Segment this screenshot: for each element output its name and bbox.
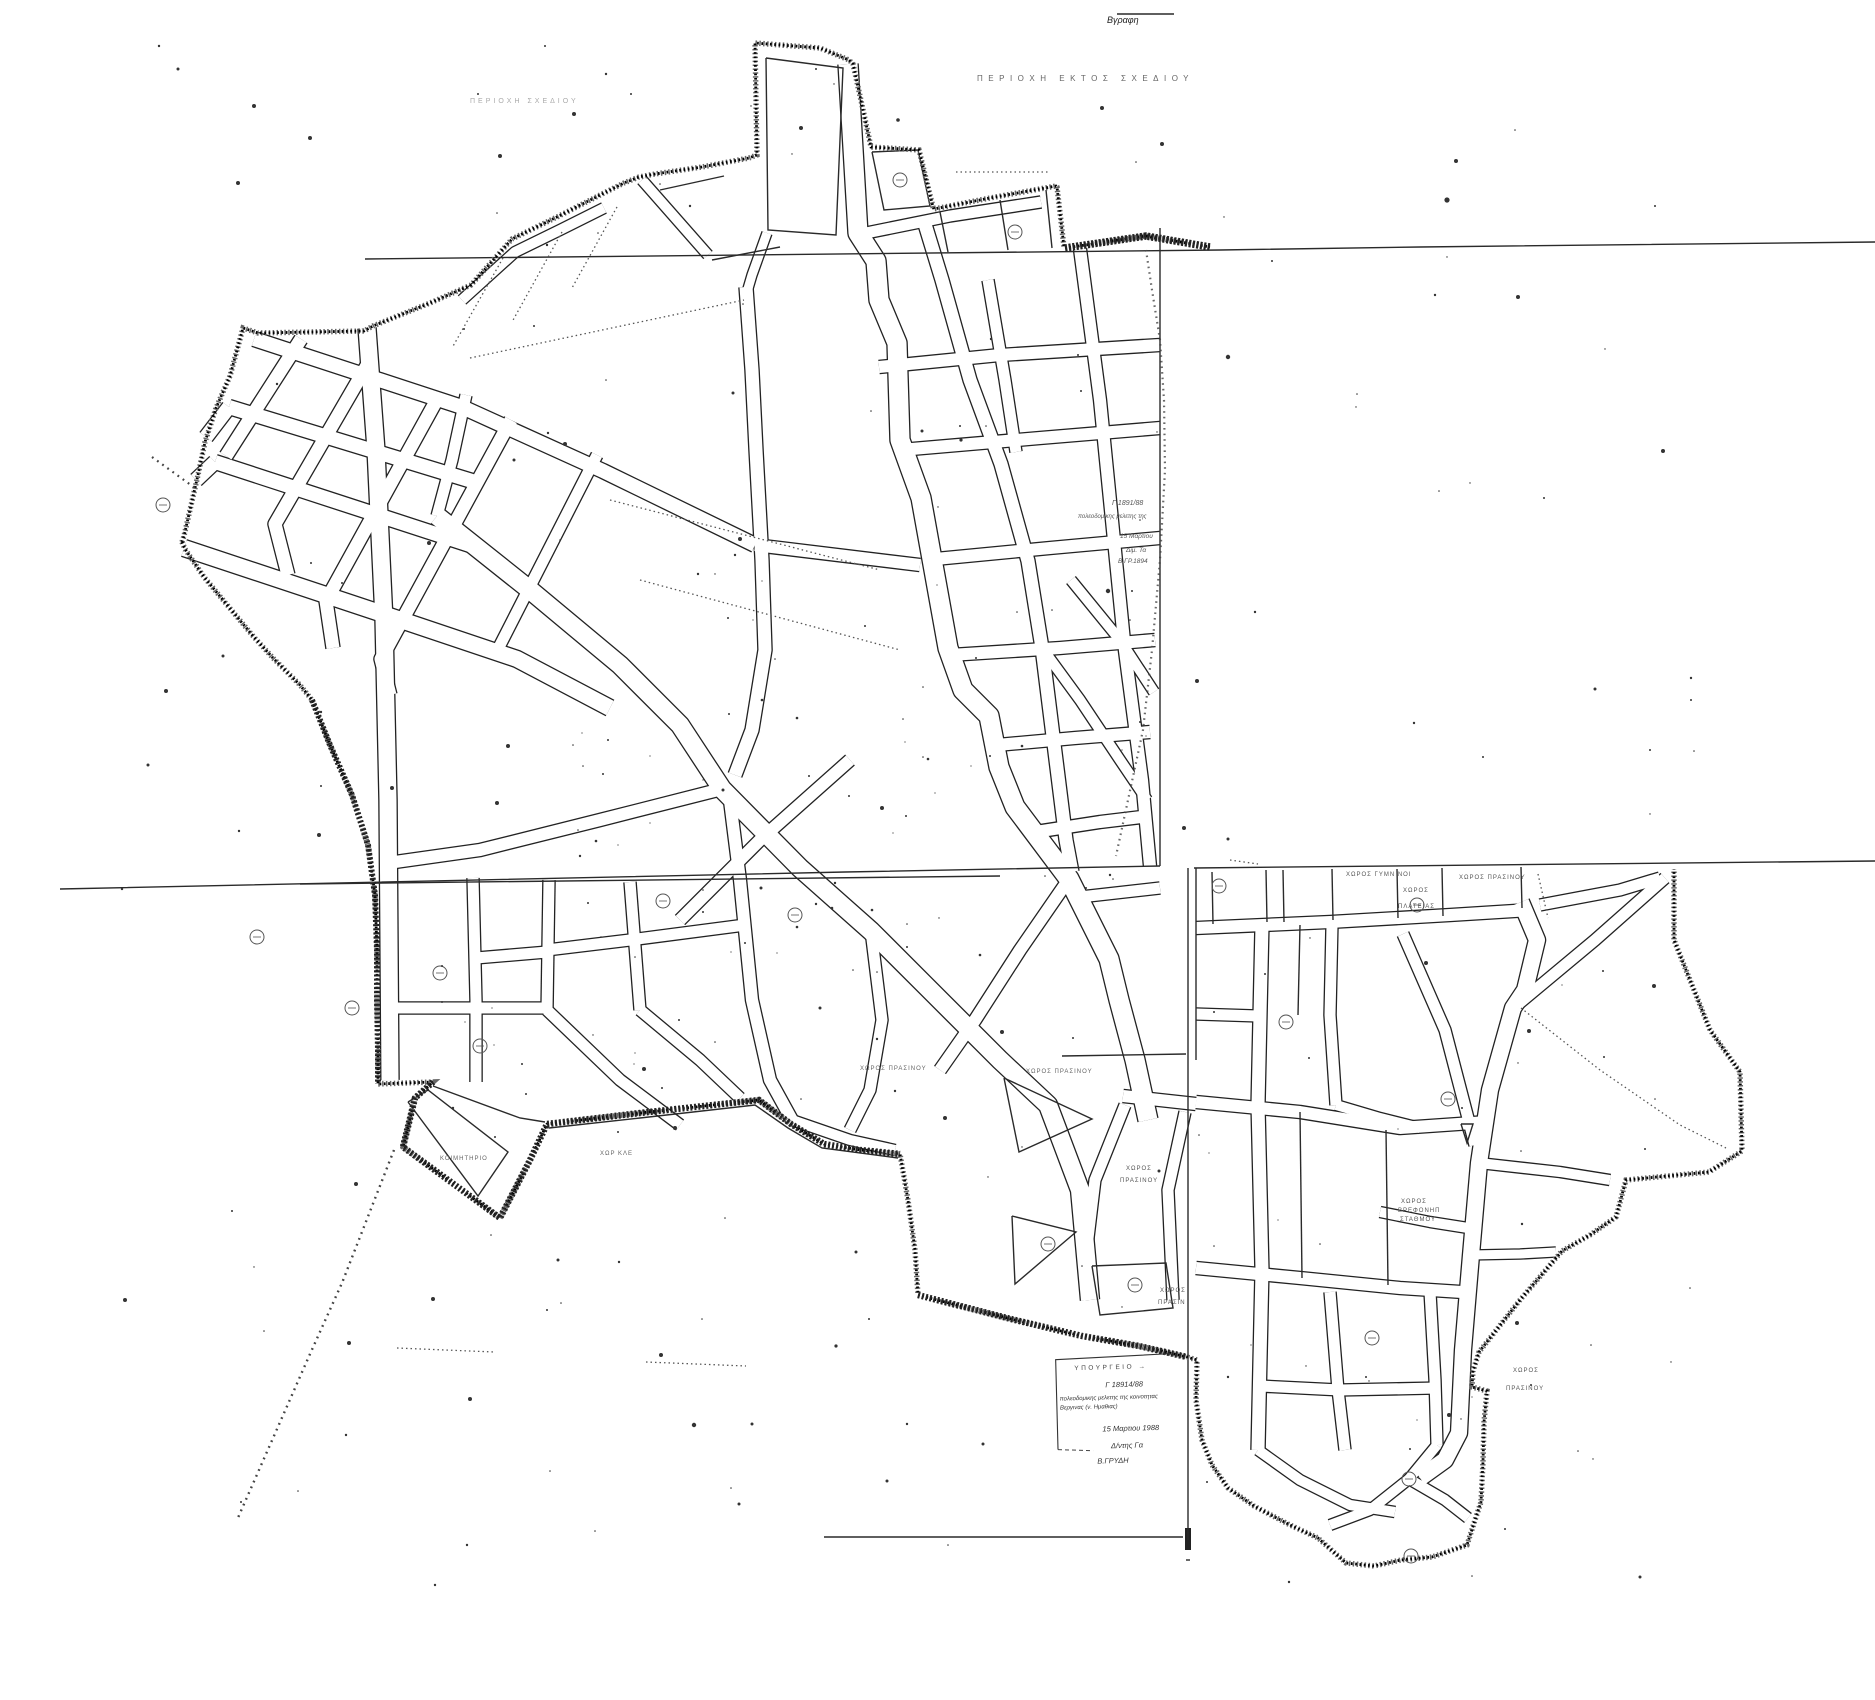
svg-text:ΧΩΡΟΣ: ΧΩΡΟΣ [1401, 1199, 1427, 1205]
svg-text:ΣΤΑΘΜΟΥ: ΣΤΑΘΜΟΥ [1400, 1217, 1436, 1223]
svg-text:ΠΡΑΣΙΝΟΥ: ΠΡΑΣΙΝΟΥ [1506, 1386, 1544, 1392]
svg-text:ΧΩΡΟΣ ΠΡΑΣΙΝΟΥ: ΧΩΡΟΣ ΠΡΑΣΙΝΟΥ [860, 1066, 927, 1072]
svg-text:ΚΟΙΜΗΤΗΡΙΟ: ΚΟΙΜΗΤΗΡΙΟ [440, 1156, 488, 1162]
svg-text:ΧΩΡΟΣ ΠΡΑΣΙΝΟΥ: ΧΩΡΟΣ ΠΡΑΣΙΝΟΥ [1459, 875, 1526, 881]
svg-text:ΧΩΡΟΣ: ΧΩΡΟΣ [1403, 888, 1429, 894]
svg-text:Διμ. Τα: Διμ. Τα [1125, 547, 1146, 554]
svg-text:ΧΩΡΟΣ: ΧΩΡΟΣ [1513, 1368, 1539, 1374]
svg-text:πολεοδομικης μελετης της: πολεοδομικης μελετης της [1078, 514, 1147, 520]
svg-text:ΠΡΑΣΙΝ: ΠΡΑΣΙΝ [1158, 1300, 1186, 1306]
svg-text:Γ 1891/88: Γ 1891/88 [1112, 500, 1143, 507]
svg-text:ΒΡΕΦΟΝΗΠ: ΒΡΕΦΟΝΗΠ [1398, 1208, 1440, 1214]
svg-text:15 Μαρτιου: 15 Μαρτιου [1120, 533, 1153, 540]
svg-text:ΧΩΡΟΣ: ΧΩΡΟΣ [1160, 1288, 1186, 1294]
svg-text:ΠΡΑΣΙΝΟΥ: ΠΡΑΣΙΝΟΥ [1120, 1178, 1158, 1184]
svg-text:ΧΩΡ ΚΛΕ: ΧΩΡ ΚΛΕ [600, 1151, 633, 1157]
svg-text:ΧΩΡΟΣ ΠΡΑΣΙΝΟΥ: ΧΩΡΟΣ ΠΡΑΣΙΝΟΥ [1026, 1069, 1093, 1075]
svg-text:Β.ΓΡΥΔΗ: Β.ΓΡΥΔΗ [1097, 1456, 1129, 1466]
svg-text:ΠΛΑΤΕΙΑΣ: ΠΛΑΤΕΙΑΣ [1398, 904, 1435, 910]
svg-text:Βγραφη: Βγραφη [1107, 15, 1139, 25]
svg-text:Γ 18914/88: Γ 18914/88 [1105, 1379, 1144, 1389]
svg-text:15 Μαρτιου 1988: 15 Μαρτιου 1988 [1102, 1423, 1160, 1434]
svg-text:ΠΕΡΙΟΧΗ ΕΚΤΟΣ ΣΧΕΔΙΟΥ: ΠΕΡΙΟΧΗ ΕΚΤΟΣ ΣΧΕΔΙΟΥ [977, 74, 1194, 83]
svg-text:ΧΩΡΟΣ ΓΥΜΝ ΝΟΙ: ΧΩΡΟΣ ΓΥΜΝ ΝΟΙ [1346, 872, 1412, 878]
svg-text:ΧΩΡΟΣ: ΧΩΡΟΣ [1126, 1166, 1152, 1172]
svg-text:Δ/ντης Γα: Δ/ντης Γα [1110, 1440, 1144, 1450]
svg-text:ΠΕΡΙΟΧΗ ΣΧΕΔΙΟΥ: ΠΕΡΙΟΧΗ ΣΧΕΔΙΟΥ [470, 98, 579, 105]
svg-text:Β.ΓΡ.1894: Β.ΓΡ.1894 [1118, 558, 1148, 565]
